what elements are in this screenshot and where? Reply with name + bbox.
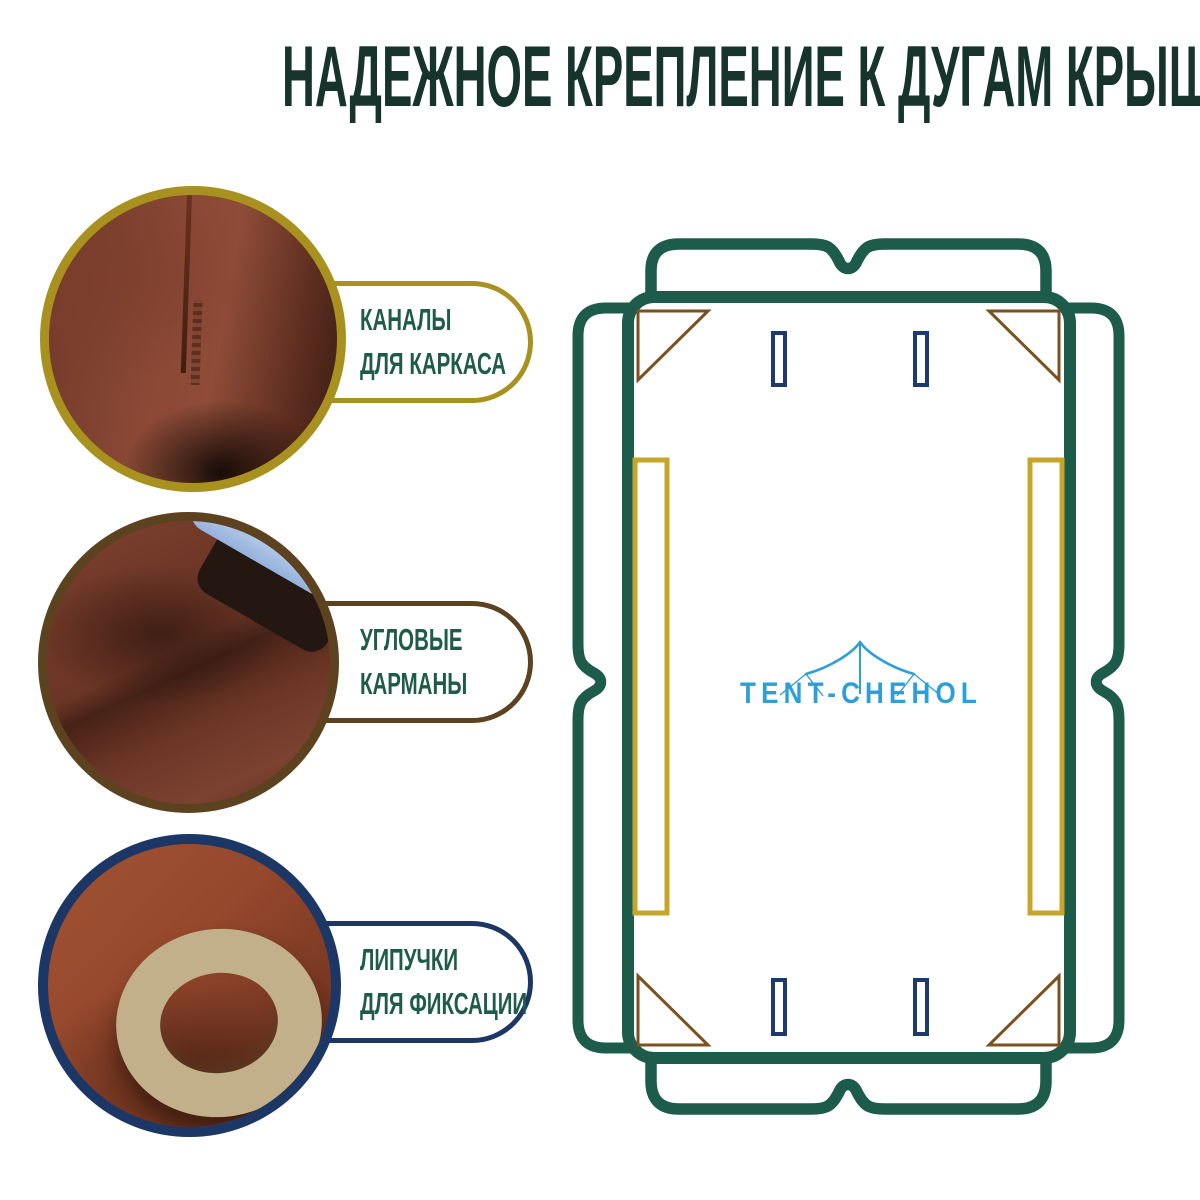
velcro-strap-loop <box>104 915 331 1127</box>
feature-label-channels-text: КАНАЛЫ ДЛЯ КАРКАСА <box>360 298 506 386</box>
feature-photo-velcro <box>38 834 341 1137</box>
feature-label-velcro-text: ЛИПУЧКИ ДЛЯ ФИКСАЦИИ <box>360 938 527 1026</box>
feature-photo-channels <box>40 186 346 492</box>
feature-label-corner-pockets-text: УГЛОВЫЕ КАРМАНЫ <box>360 618 467 706</box>
page-title: НАДЕЖНОЕ КРЕПЛЕНИЕ К ДУГАМ КРЫШИ <box>282 34 918 120</box>
feature-label-line2: КАРМАНЫ <box>360 662 467 706</box>
corner-pocket-photo <box>47 521 330 804</box>
feature-label-line2: ДЛЯ КАРКАСА <box>360 342 506 386</box>
velcro-strap-photo <box>48 844 331 1127</box>
feature-label-line2: ДЛЯ ФИКСАЦИИ <box>360 982 527 1026</box>
tent-cover-diagram: TENT-CHEHOL <box>560 230 1140 1150</box>
infographic-page: НАДЕЖНОЕ КРЕПЛЕНИЕ К ДУГАМ КРЫШИ КАНАЛЫ … <box>0 0 1200 1200</box>
fabric-channel-photo <box>49 195 337 483</box>
feature-label-line1: ЛИПУЧКИ <box>360 938 527 982</box>
feature-label-line1: КАНАЛЫ <box>360 298 506 342</box>
feature-photo-corner-pockets <box>38 512 339 813</box>
brand-logo-text: TENT-CHEHOL <box>740 677 982 710</box>
seam-stitching <box>190 299 202 386</box>
feature-label-line1: УГЛОВЫЕ <box>360 618 467 662</box>
